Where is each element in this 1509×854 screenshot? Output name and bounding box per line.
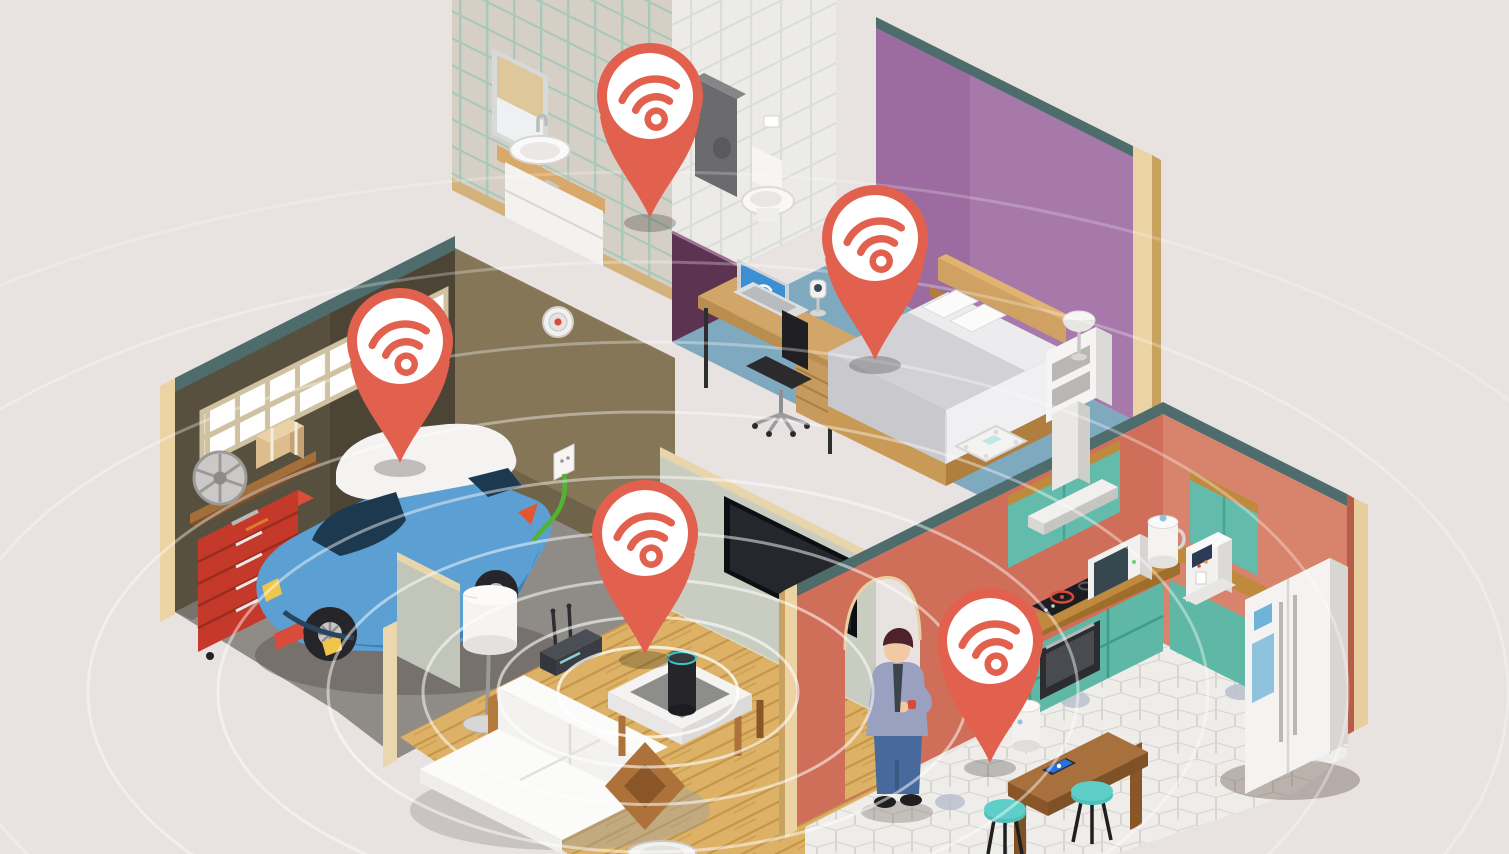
smoke-detector	[543, 307, 573, 337]
living-room-front-wall-stub	[383, 621, 397, 768]
smart-speaker	[668, 650, 696, 716]
smartwatch	[908, 700, 916, 709]
garage-wall-corner-edge	[160, 378, 175, 622]
wall-fan	[194, 452, 246, 504]
light-switch	[764, 116, 779, 127]
water-dispenser	[1252, 633, 1274, 703]
smart-home-illustration	[0, 0, 1509, 854]
bedroom-wall-corner-edge	[1133, 146, 1152, 428]
kitchen-wall-corner-edge	[1354, 498, 1368, 731]
shoe	[900, 794, 922, 806]
